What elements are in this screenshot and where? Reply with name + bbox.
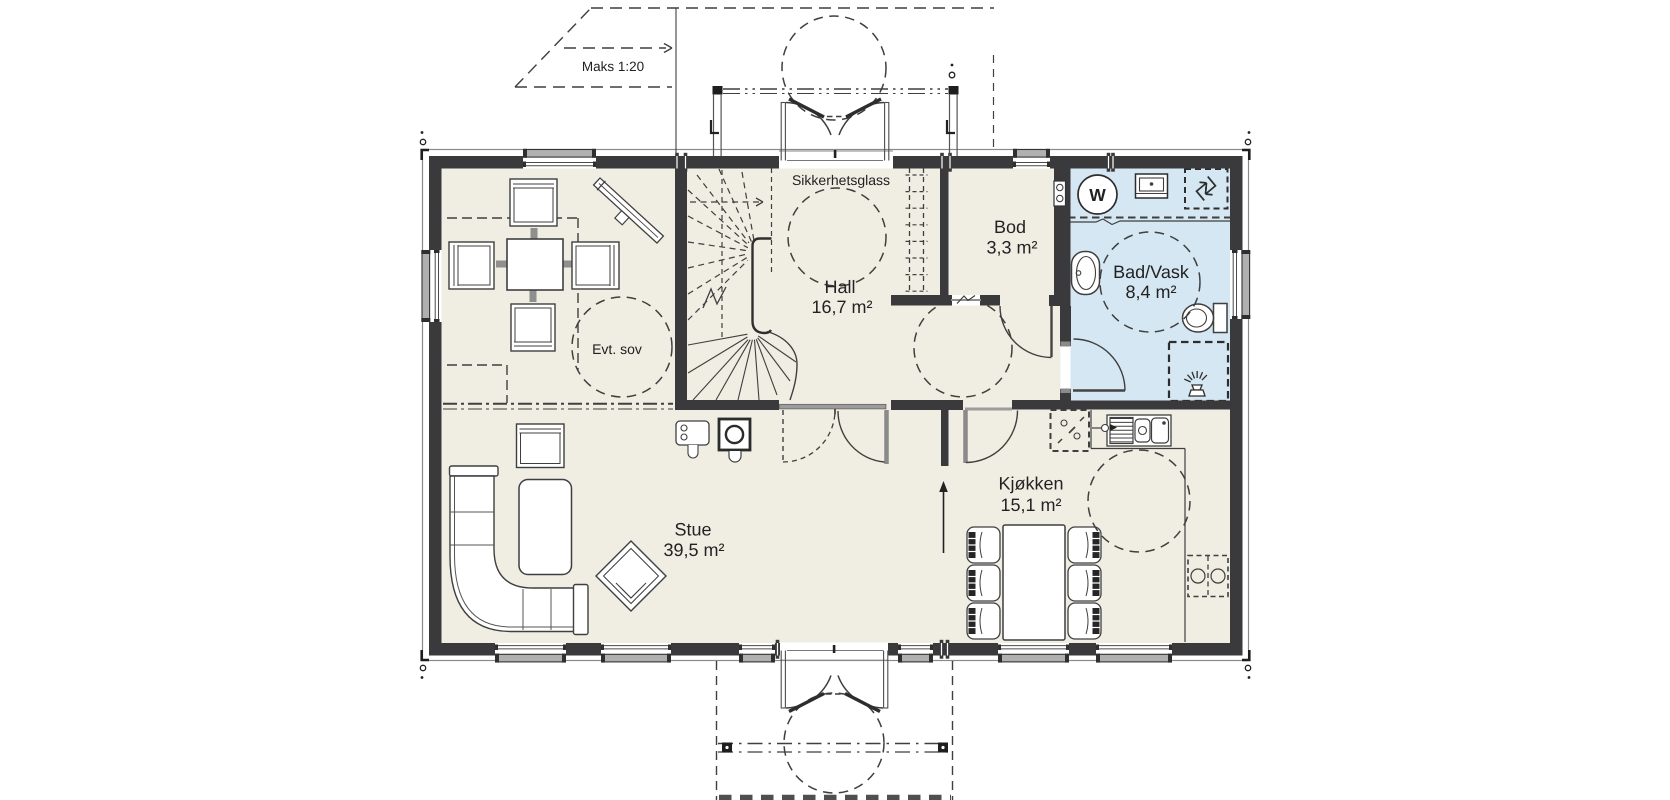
svg-text:Stue: Stue bbox=[674, 520, 711, 540]
svg-text:Sikkerhetsglass: Sikkerhetsglass bbox=[792, 172, 890, 188]
svg-text:W: W bbox=[1089, 185, 1106, 205]
svg-text:Bod: Bod bbox=[994, 217, 1026, 237]
svg-text:Kjøkken: Kjøkken bbox=[998, 474, 1063, 494]
svg-text:8,4 m²: 8,4 m² bbox=[1125, 282, 1176, 302]
svg-text:3,3 m²: 3,3 m² bbox=[986, 238, 1037, 258]
svg-text:Maks 1:20: Maks 1:20 bbox=[582, 59, 644, 74]
svg-text:Hall: Hall bbox=[824, 277, 855, 297]
svg-text:Bad/Vask: Bad/Vask bbox=[1113, 262, 1190, 282]
svg-text:Evt. sov: Evt. sov bbox=[592, 341, 642, 357]
svg-text:15,1 m²: 15,1 m² bbox=[1000, 495, 1061, 515]
svg-text:16,7 m²: 16,7 m² bbox=[811, 297, 872, 317]
svg-text:39,5 m²: 39,5 m² bbox=[663, 540, 724, 560]
